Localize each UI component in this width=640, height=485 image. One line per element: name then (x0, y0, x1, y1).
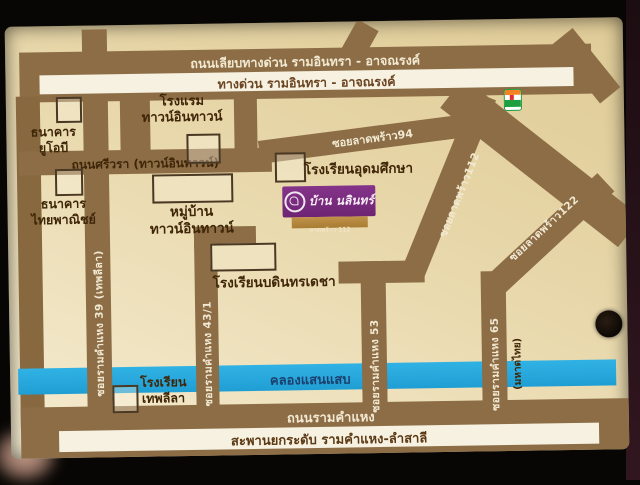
road-label-mahadthai: (มหาดไทย) (510, 338, 526, 390)
road-label-soi65: ซอยรามคำแหง 65 (486, 317, 504, 411)
seven-eleven-green-stripe (505, 100, 521, 107)
udomsuksa-label: โรงเรียนอุดมศึกษา (304, 156, 454, 180)
bodindecha-label: โรงเรียนบดินทรเดชา (213, 269, 373, 294)
landmark-subtitle: ลาดพร้าว 112 (309, 225, 351, 234)
landmark-name: บ้าน นลินทร์ (309, 191, 374, 211)
canal-label: คลองแสนแสบ (240, 368, 380, 391)
black-dot-mark (595, 310, 622, 337)
udomsuksa-square (275, 152, 306, 182)
landmark-logo: บ้าน นลินทร์ (282, 185, 375, 217)
hotel-label: โรงแรม ทาวน์อินทาวน์ (120, 93, 244, 127)
seven-eleven-red-7 (510, 95, 514, 100)
scb-bank-square (55, 169, 83, 196)
hotel-square (186, 134, 220, 165)
uob-bank-square (56, 97, 82, 123)
road-label-soi39: ซอยรามคำแหง 39 (เทพลีลา) (90, 250, 109, 397)
landmark-logo-band: ลาดพร้าว 112 (292, 216, 368, 228)
seven-eleven-icon (504, 89, 522, 111)
moo-baan-label: หมู่บ้าน ทาวน์อินทาวน์ (127, 203, 256, 239)
bodindecha-rect (210, 243, 276, 272)
flower-logo-icon (284, 191, 305, 212)
thepleela-label: โรงเรียน เทพลีลา (130, 374, 196, 406)
scb-bank-label: ธนาคาร ไทยพาณิชย์ (13, 195, 113, 228)
moo-baan-rect (152, 173, 233, 203)
map-card: ถนนเลียบทางด่วน รามอินทรา - อาจณรงค์ ทาง… (5, 17, 630, 459)
road-soi39-upper (82, 29, 107, 53)
road-label-soi43: ซอยรามคำแหง 43/1 (198, 301, 217, 406)
seven-eleven-white-stripe (505, 95, 521, 100)
road-label-soi53: ซอยรามคำแหง 53 (366, 319, 384, 413)
uob-bank-label: ธนาคาร ยูโอบี (14, 124, 92, 156)
